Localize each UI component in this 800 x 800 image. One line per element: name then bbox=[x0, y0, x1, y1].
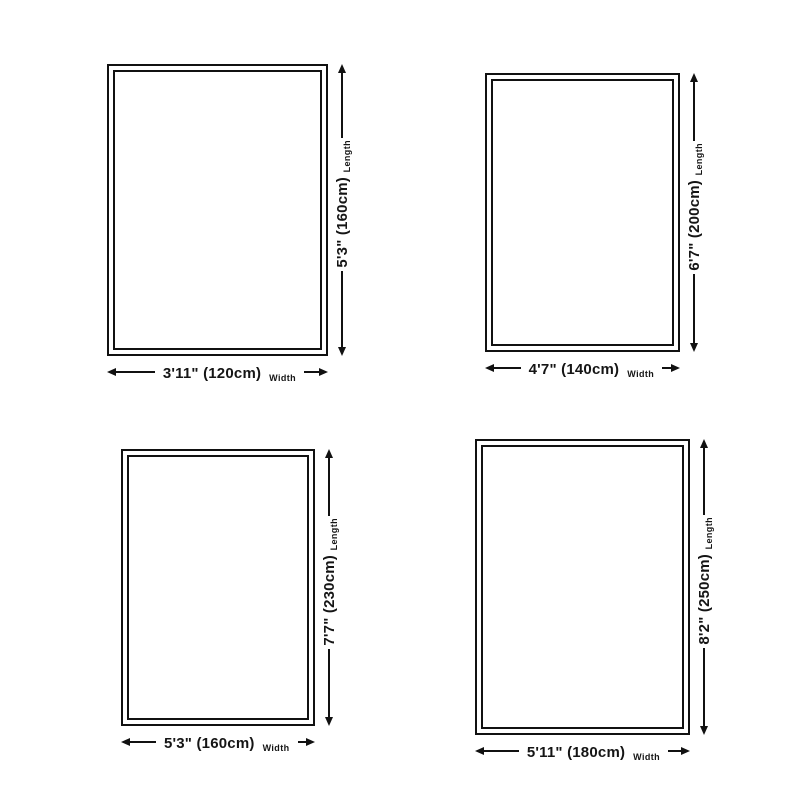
length-dimension: Length 8'2" (250cm) bbox=[695, 439, 713, 735]
dimension-line bbox=[304, 371, 319, 373]
width-axis-label: Width bbox=[263, 743, 290, 753]
rug-outline bbox=[121, 449, 315, 726]
arrow-down-icon bbox=[325, 717, 333, 726]
dimension-line bbox=[494, 367, 521, 369]
arrow-right-icon bbox=[671, 364, 680, 372]
width-axis-label: Width bbox=[633, 752, 660, 762]
arrow-down-icon bbox=[338, 347, 346, 356]
width-dimension-line-right bbox=[662, 363, 680, 373]
rug-size-guide: Length 5'3" (160cm) 3'11" (120cm) Width bbox=[0, 0, 800, 800]
length-dimension-line-top bbox=[689, 73, 699, 141]
arrow-down-icon bbox=[700, 726, 708, 735]
width-dimension-line-left bbox=[485, 363, 521, 373]
length-value-label: 5'3" (160cm) bbox=[334, 177, 351, 268]
dimension-line bbox=[693, 82, 695, 141]
length-axis-label: Length bbox=[342, 140, 352, 172]
dimension-line bbox=[693, 274, 695, 343]
width-axis-label: Width bbox=[627, 369, 654, 379]
rug-outline bbox=[485, 73, 680, 352]
dimension-line bbox=[662, 367, 671, 369]
arrow-up-icon bbox=[338, 64, 346, 73]
rug-diagram-180x250: Length 8'2" (250cm) 5'11" (180cm) Width bbox=[475, 439, 690, 735]
width-dimension-line-right bbox=[668, 746, 690, 756]
length-dimension-line-bottom bbox=[337, 271, 347, 356]
dimension-line bbox=[668, 750, 681, 752]
length-dimension-line-top bbox=[337, 64, 347, 138]
arrow-right-icon bbox=[681, 747, 690, 755]
width-axis-label: Width bbox=[269, 373, 296, 383]
length-axis-label: Length bbox=[704, 517, 714, 549]
dimension-line bbox=[130, 741, 156, 743]
arrow-up-icon bbox=[700, 439, 708, 448]
arrow-right-icon bbox=[306, 738, 315, 746]
width-dimension: 5'11" (180cm) Width bbox=[475, 740, 690, 762]
width-dimension: 4'7" (140cm) Width bbox=[485, 357, 680, 379]
dimension-line bbox=[341, 271, 343, 347]
length-dimension: Length 6'7" (200cm) bbox=[685, 73, 703, 352]
length-dimension: Length 7'7" (230cm) bbox=[320, 449, 338, 726]
arrow-left-icon bbox=[475, 747, 484, 755]
dimension-line bbox=[328, 458, 330, 516]
length-axis-label: Length bbox=[329, 518, 339, 550]
arrow-down-icon bbox=[690, 343, 698, 352]
rug-outline bbox=[107, 64, 328, 356]
dimension-line bbox=[341, 73, 343, 138]
dimension-line bbox=[484, 750, 519, 752]
length-dimension-line-bottom bbox=[324, 649, 334, 726]
length-value-label: 7'7" (230cm) bbox=[321, 555, 338, 646]
width-dimension-line-right bbox=[298, 737, 315, 747]
rug-diagram-160x230: Length 7'7" (230cm) 5'3" (160cm) Width bbox=[121, 449, 315, 726]
width-dimension-line-right bbox=[304, 367, 328, 377]
length-dimension-line-top bbox=[699, 439, 709, 515]
width-dimension-line-left bbox=[475, 746, 519, 756]
width-dimension: 3'11" (120cm) Width bbox=[107, 361, 328, 383]
dimension-line bbox=[116, 371, 155, 373]
rug-inner-outline bbox=[481, 445, 684, 729]
width-value-label: 5'3" (160cm) bbox=[164, 735, 255, 752]
length-value-label: 6'7" (200cm) bbox=[686, 180, 703, 271]
length-dimension-line-bottom bbox=[689, 274, 699, 352]
rug-inner-outline bbox=[127, 455, 309, 720]
dimension-line bbox=[703, 448, 705, 515]
width-dimension-line-left bbox=[121, 737, 156, 747]
dimension-line bbox=[298, 741, 306, 743]
length-dimension-line-bottom bbox=[699, 648, 709, 735]
width-value-label: 3'11" (120cm) bbox=[163, 365, 261, 382]
dimension-line bbox=[328, 649, 330, 717]
width-value-label: 5'11" (180cm) bbox=[527, 744, 625, 761]
rug-outline bbox=[475, 439, 690, 735]
width-dimension-line-left bbox=[107, 367, 155, 377]
rug-diagram-120x160: Length 5'3" (160cm) 3'11" (120cm) Width bbox=[107, 64, 328, 356]
arrow-left-icon bbox=[107, 368, 116, 376]
arrow-up-icon bbox=[325, 449, 333, 458]
arrow-left-icon bbox=[121, 738, 130, 746]
dimension-line bbox=[703, 648, 705, 726]
length-dimension-line-top bbox=[324, 449, 334, 516]
rug-diagram-140x200: Length 6'7" (200cm) 4'7" (140cm) Width bbox=[485, 73, 680, 352]
rug-inner-outline bbox=[491, 79, 674, 346]
arrow-right-icon bbox=[319, 368, 328, 376]
rug-inner-outline bbox=[113, 70, 322, 350]
length-value-label: 8'2" (250cm) bbox=[696, 554, 713, 645]
length-dimension: Length 5'3" (160cm) bbox=[333, 64, 351, 356]
arrow-left-icon bbox=[485, 364, 494, 372]
width-dimension: 5'3" (160cm) Width bbox=[121, 731, 315, 753]
arrow-up-icon bbox=[690, 73, 698, 82]
length-axis-label: Length bbox=[694, 143, 704, 175]
width-value-label: 4'7" (140cm) bbox=[529, 361, 620, 378]
